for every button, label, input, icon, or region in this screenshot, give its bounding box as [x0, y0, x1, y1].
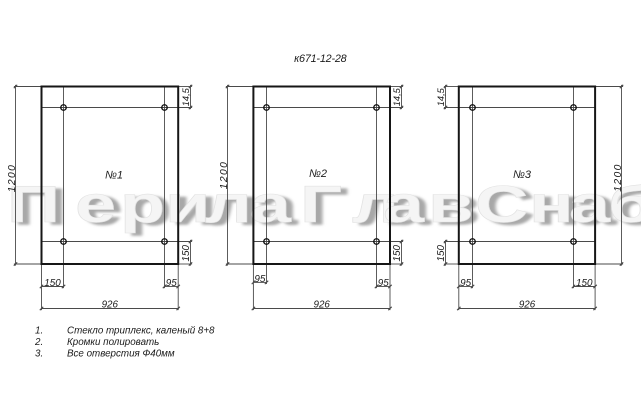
svg-text:3.: 3. — [35, 349, 43, 360]
svg-text:150: 150 — [44, 278, 61, 289]
svg-text:926: 926 — [519, 300, 536, 311]
svg-text:ПерилаГлавСнаб: ПерилаГлавСнаб — [7, 175, 641, 234]
svg-text:14,5: 14,5 — [392, 87, 402, 106]
svg-text:95: 95 — [460, 278, 471, 289]
svg-text:1200: 1200 — [7, 164, 18, 193]
svg-text:926: 926 — [102, 300, 119, 311]
svg-text:Все отверстия Ф40мм: Все отверстия Ф40мм — [67, 349, 175, 360]
svg-text:150: 150 — [576, 278, 593, 289]
svg-text:№1: №1 — [105, 170, 123, 182]
svg-text:150: 150 — [392, 244, 403, 261]
svg-text:14,5: 14,5 — [436, 87, 446, 106]
svg-text:№3: №3 — [513, 169, 532, 181]
svg-text:1.: 1. — [35, 326, 43, 337]
svg-text:95: 95 — [254, 274, 265, 285]
svg-text:2.: 2. — [34, 337, 43, 348]
svg-text:Кромки полировать: Кромки полировать — [67, 337, 159, 348]
svg-text:95: 95 — [166, 278, 177, 289]
svg-text:1200: 1200 — [219, 161, 230, 190]
svg-text:926: 926 — [314, 300, 331, 311]
svg-text:Стекло триплекс, каленый 8+8: Стекло триплекс, каленый 8+8 — [67, 326, 215, 337]
svg-text:150: 150 — [181, 244, 192, 261]
svg-text:150: 150 — [436, 244, 447, 261]
svg-text:1200: 1200 — [613, 163, 624, 192]
svg-text:к671-12-28: к671-12-28 — [294, 53, 347, 65]
svg-text:14,5: 14,5 — [181, 87, 191, 106]
svg-text:№2: №2 — [309, 168, 327, 180]
svg-text:95: 95 — [378, 278, 389, 289]
